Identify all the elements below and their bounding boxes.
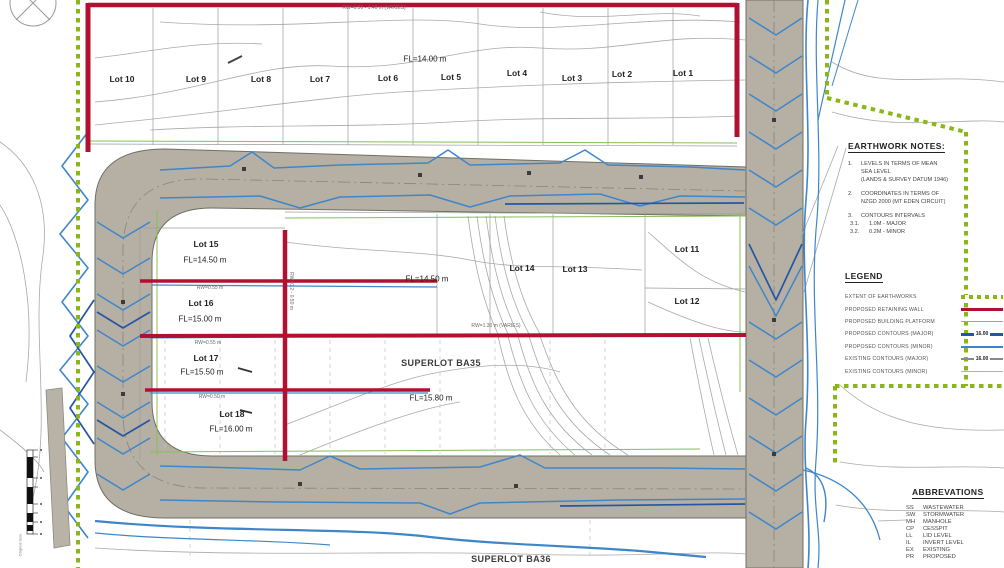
- earthworks-plan-sheet: RW=0.50 - 1.40 m (VARIES) Lot 10 Lot 9 L…: [0, 0, 1004, 568]
- retaining-wall-dim-label: RW=1.30 m (VARIES): [471, 323, 520, 329]
- abbreviation-row: SSWASTEWATER: [906, 505, 1004, 512]
- note-text: LEVELS IN TERMS OF MEAN: [861, 160, 937, 168]
- abbreviation-row: PRPROPOSED: [906, 554, 1004, 561]
- lot-18-label: Lot 18: [219, 409, 244, 419]
- note-text: NZGD 2000 (MT EDEN CIRCUIT): [861, 198, 945, 206]
- floor-level-mid-block: FL=14.50 m: [406, 275, 449, 284]
- abbr-code: EX: [906, 547, 923, 554]
- legend-item: PROPOSED CONTOURS (MAJOR) 16.00: [845, 328, 1003, 340]
- building-platform-swatch: [961, 321, 1003, 322]
- earthwork-notes-panel: EARTHWORK NOTES: 1.LEVELS IN TERMS OF ME…: [848, 136, 1000, 236]
- abbr-term: INVERT LEVEL: [923, 540, 964, 547]
- legend-item: EXISTING CONTOURS (MAJOR) 16.00: [845, 353, 1003, 365]
- retaining-wall-dim-label-vertical: RW=0.2 - 0.50 m: [288, 272, 294, 310]
- floor-level-top-block: FL=14.00 m: [404, 55, 447, 64]
- legend-panel: LEGEND EXTENT OF EARTHWORKS PROPOSED RET…: [845, 266, 1003, 378]
- retaining-wall-swatch: [961, 308, 1003, 311]
- abbr-code: MH: [906, 519, 923, 526]
- lot-12-label: Lot 12: [674, 296, 699, 306]
- note-text: SEA LEVEL: [861, 168, 891, 176]
- note-row: NZGD 2000 (MT EDEN CIRCUIT): [848, 198, 1000, 206]
- lot-10-label: Lot 10: [109, 74, 134, 84]
- legend-item-label: EXTENT OF EARTHWORKS: [845, 294, 917, 300]
- superlot-ba35-floor-level: FL=15.80 m: [410, 394, 453, 403]
- abbreviation-row: EXEXISTING: [906, 547, 1004, 554]
- lot-14-label: Lot 14: [509, 263, 534, 273]
- lot-17-floor-level: FL=15.50 m: [181, 368, 224, 377]
- lot-6-label: Lot 6: [378, 73, 398, 83]
- sheet-scale-note: Original Size: [18, 534, 23, 557]
- lot-15-floor-level: FL=14.50 m: [184, 256, 227, 265]
- lot-9-label: Lot 9: [186, 74, 206, 84]
- abbr-term: MANHOLE: [923, 519, 952, 526]
- note-number: 3.2.: [848, 228, 863, 236]
- note-row: 3.CONTOURS INTERVALS: [848, 212, 1000, 220]
- lot-3-label: Lot 3: [562, 73, 582, 83]
- lot-16-label: Lot 16: [188, 298, 213, 308]
- abbr-code: LL: [906, 533, 923, 540]
- lot-1-label: Lot 1: [673, 68, 693, 78]
- note-number: [848, 176, 861, 184]
- abbr-term: PROPOSED: [923, 554, 956, 561]
- legend-item-label: PROPOSED CONTOURS (MINOR): [845, 344, 933, 350]
- existing-contour-minor-swatch: [961, 371, 1003, 372]
- retaining-wall-dim-label: RW=0.55 m: [195, 340, 221, 346]
- legend-item-label: PROPOSED CONTOURS (MAJOR): [845, 331, 934, 337]
- abbreviation-row: MHMANHOLE: [906, 519, 1004, 526]
- abbreviation-row: ILINVERT LEVEL: [906, 540, 1004, 547]
- abbr-term: WASTEWATER: [923, 505, 964, 512]
- lot-18-floor-level: FL=16.00 m: [210, 425, 253, 434]
- lot-17-label: Lot 17: [193, 353, 218, 363]
- abbr-code: IL: [906, 540, 923, 547]
- note-number: 1.: [848, 160, 861, 168]
- note-number: 3.1.: [848, 220, 863, 228]
- abbr-code: SW: [906, 512, 923, 519]
- proposed-contour-major-swatch: 16.00: [961, 331, 1003, 337]
- note-text: (LANDS & SURVEY DATUM 1946): [861, 176, 948, 184]
- legend-title: LEGEND: [845, 271, 883, 283]
- earthwork-notes-title: EARTHWORK NOTES:: [848, 141, 945, 153]
- retaining-wall-dim-label: RW=0.55 m: [197, 285, 223, 291]
- embankment-strip: [46, 388, 70, 548]
- note-text: 1.0M - MAJOR: [863, 220, 906, 228]
- north-marker: [10, 0, 56, 26]
- note-number: 3.: [848, 212, 861, 220]
- retaining-wall-dim-label: RW=0.50 m: [199, 394, 225, 400]
- retaining-wall-dim-label: RW=0.50 - 1.40 m (VARIES): [342, 5, 405, 11]
- lot-8-label: Lot 8: [251, 74, 271, 84]
- note-row: (LANDS & SURVEY DATUM 1946): [848, 176, 1000, 184]
- note-number: [848, 168, 861, 176]
- lot-16-floor-level: FL=15.00 m: [179, 315, 222, 324]
- abbr-term: EXISTING: [923, 547, 950, 554]
- note-number: 2.: [848, 190, 861, 198]
- proposed-contour-minor-swatch: [961, 346, 1003, 348]
- note-row: 1.LEVELS IN TERMS OF MEAN: [848, 160, 1000, 168]
- legend-item: EXTENT OF EARTHWORKS: [845, 291, 1003, 303]
- abbr-code: SS: [906, 505, 923, 512]
- note-row: 3.1.1.0M - MAJOR: [848, 220, 1000, 228]
- abbr-code: PR: [906, 554, 923, 561]
- superlot-ba36-label: SUPERLOT BA36: [471, 554, 551, 564]
- lot-2-label: Lot 2: [612, 69, 632, 79]
- note-number: [848, 198, 861, 206]
- abbreviation-row: SWSTORMWATER: [906, 512, 1004, 519]
- retaining-walls: [88, 3, 746, 461]
- abbreviations-title: ABBREVATIONS: [912, 487, 984, 499]
- legend-item: PROPOSED CONTOURS (MINOR): [845, 341, 1003, 353]
- note-text: 0.2M - MINOR: [863, 228, 905, 236]
- legend-item: PROPOSED RETAINING WALL: [845, 303, 1003, 315]
- abbr-term: STORMWATER: [923, 512, 964, 519]
- superlot-ba35-label: SUPERLOT BA35: [401, 358, 481, 368]
- note-row: SEA LEVEL: [848, 168, 1000, 176]
- abbr-term: CESSPIT: [923, 526, 948, 533]
- legend-item-label: EXISTING CONTOURS (MAJOR): [845, 356, 928, 362]
- legend-item: EXISTING CONTOURS (MINOR): [845, 365, 1003, 377]
- lot-13-label: Lot 13: [562, 264, 587, 274]
- legend-item: PROPOSED BUILDING PLATFORM: [845, 316, 1003, 328]
- legend-item-label: PROPOSED BUILDING PLATFORM: [845, 319, 935, 325]
- abbr-code: CP: [906, 526, 923, 533]
- note-text: CONTOURS INTERVALS: [861, 212, 925, 220]
- legend-item-label: PROPOSED RETAINING WALL: [845, 307, 924, 313]
- abbreviations-panel: ABBREVATIONS SSWASTEWATER SWSTORMWATER M…: [906, 482, 1004, 561]
- lot-15-label: Lot 15: [193, 239, 218, 249]
- abbr-term: LID LEVEL: [923, 533, 952, 540]
- lot-4-label: Lot 4: [507, 68, 527, 78]
- lot-11-label: Lot 11: [675, 244, 700, 254]
- contour-value-label: 16.00: [974, 356, 990, 362]
- note-row: 3.2.0.2M - MINOR: [848, 228, 1000, 236]
- lot-7-label: Lot 7: [310, 74, 330, 84]
- contour-value-label: 16.00: [974, 331, 990, 337]
- legend-item-label: EXISTING CONTOURS (MINOR): [845, 369, 927, 375]
- abbreviation-row: CPCESSPIT: [906, 526, 1004, 533]
- earthworks-extent-swatch: [961, 295, 1003, 299]
- abbreviation-row: LLLID LEVEL: [906, 533, 1004, 540]
- existing-contour-major-swatch: 16.00: [961, 356, 1003, 362]
- note-row: 2.COORDINATES IN TERMS OF: [848, 190, 1000, 198]
- note-text: COORDINATES IN TERMS OF: [861, 190, 939, 198]
- lot-5-label: Lot 5: [441, 72, 461, 82]
